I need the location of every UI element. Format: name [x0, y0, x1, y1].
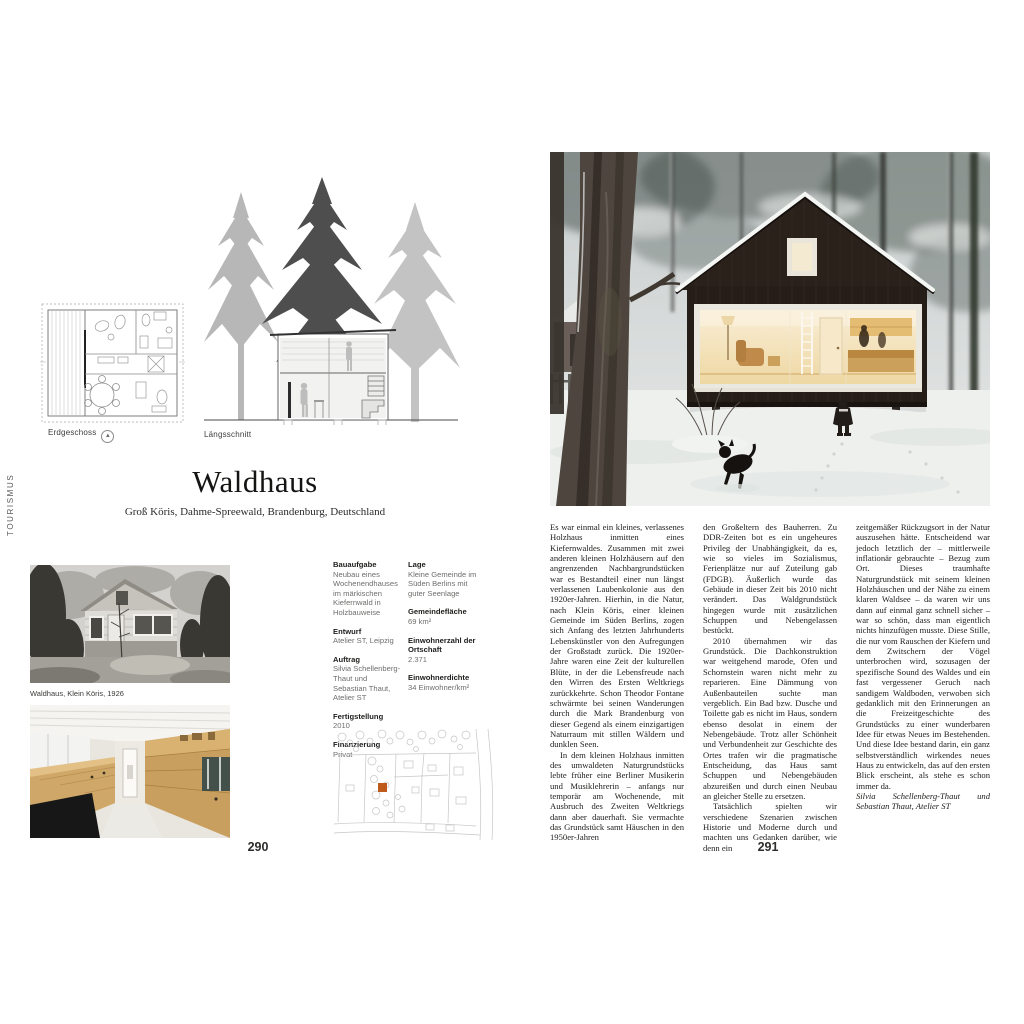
page-number-left: 290 — [238, 840, 278, 854]
page-subtitle: Groß Köris, Dahme-Spreewald, Brandenburg… — [60, 506, 450, 518]
facts-column-place: LageKleine Gemeinde im Süden Berlins mit… — [408, 560, 486, 702]
historic-photo-caption: Waldhaus, Klein Köris, 1926 — [30, 689, 124, 698]
floor-plan-drawing — [40, 302, 185, 424]
north-arrow-icon: ▲ — [101, 430, 114, 443]
section-label-vertical: TOURISMUS — [6, 522, 86, 536]
article-column-3: zeitgemäßer Rückzugsort in der Natur aus… — [856, 522, 990, 812]
historic-photo — [30, 565, 230, 683]
book-spread: TOURISMUS — [0, 0, 1024, 1024]
section-drawing — [200, 172, 460, 425]
article-column-1: Es war einmal ein kleines, verlassenes H… — [550, 522, 684, 843]
section-caption: Längsschnitt — [204, 430, 251, 439]
page-title: Waldhaus — [100, 464, 410, 500]
site-plan-drawing — [330, 727, 510, 842]
main-photo — [550, 152, 990, 506]
site-plan-marker — [378, 783, 387, 792]
plan-caption: Erdgeschoss▲ — [48, 428, 114, 443]
trees-and-section-illustration — [200, 172, 460, 425]
article-column-2: den Großeltern des Bauherren. Zu DDR-Zei… — [703, 522, 837, 853]
author-attribution: Silvia Schellenberg-Thaut und Sebastian … — [856, 791, 990, 812]
kitchen-photo — [30, 705, 230, 838]
